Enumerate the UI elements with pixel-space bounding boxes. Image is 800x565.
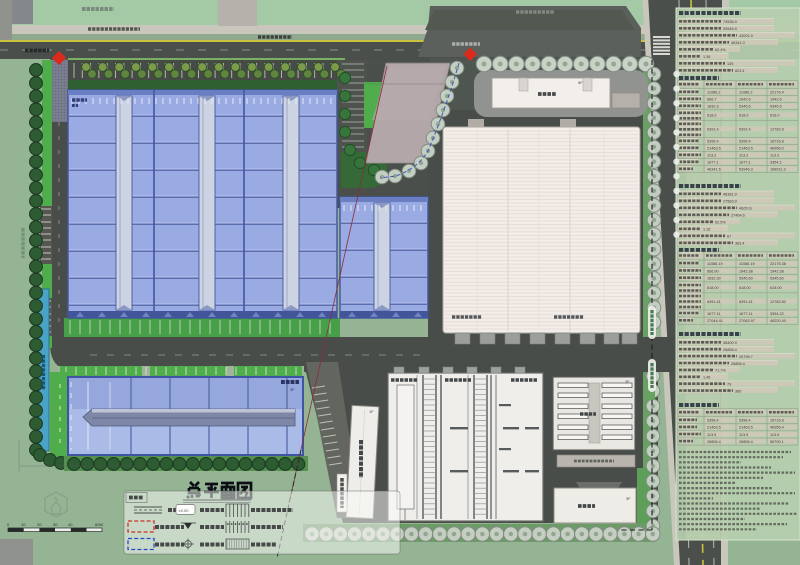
svg-text:46956.4: 46956.4 — [770, 426, 784, 430]
svg-text:618.00: 618.00 — [770, 286, 782, 290]
svg-text:666.90: 666.90 — [707, 269, 719, 273]
svg-text:5345.60: 5345.60 — [739, 277, 753, 281]
svg-text:3354.2: 3354.2 — [770, 161, 782, 165]
svg-text:11086.19: 11086.19 — [707, 262, 723, 266]
svg-text:1677.11: 1677.11 — [739, 312, 752, 316]
svg-text:30: 30 — [53, 522, 58, 527]
svg-text:360: 360 — [735, 389, 741, 393]
svg-text:±0.00: ±0.00 — [179, 508, 190, 513]
svg-text:3F: 3F — [290, 387, 295, 392]
svg-text:363.4: 363.4 — [735, 242, 745, 246]
svg-text:618.0: 618.0 — [707, 114, 717, 118]
svg-text:3F: 3F — [625, 379, 630, 384]
svg-text:3F: 3F — [626, 496, 631, 501]
svg-text:1.46: 1.46 — [703, 376, 710, 380]
svg-text:1F: 1F — [369, 409, 374, 414]
svg-text:22176.4: 22176.4 — [770, 91, 784, 95]
svg-text:113.9: 113.9 — [770, 433, 779, 437]
svg-text:27563.9: 27563.9 — [723, 200, 737, 204]
svg-text:79: 79 — [727, 383, 731, 387]
svg-text:1942.6: 1942.6 — [739, 98, 751, 102]
svg-text:1942.6: 1942.6 — [770, 98, 782, 102]
svg-text:26856.4: 26856.4 — [739, 440, 753, 444]
svg-text:46341.6: 46341.6 — [707, 168, 721, 172]
svg-text:113.2: 113.2 — [770, 154, 779, 158]
svg-text:21463.5: 21463.5 — [739, 147, 753, 151]
svg-text:21463.5: 21463.5 — [707, 147, 721, 151]
svg-text:21463.5: 21463.5 — [707, 426, 721, 430]
svg-text:1677.1: 1677.1 — [707, 161, 719, 165]
svg-text:1677.1: 1677.1 — [739, 161, 751, 165]
svg-text:62.4%: 62.4% — [715, 48, 726, 52]
svg-text:618.00: 618.00 — [739, 286, 751, 290]
svg-text:53946.9: 53946.9 — [723, 27, 737, 31]
svg-text:1942.38: 1942.38 — [770, 269, 784, 273]
svg-text:618.00: 618.00 — [707, 286, 719, 290]
svg-text:56790.1: 56790.1 — [770, 440, 784, 444]
svg-text:60M: 60M — [95, 522, 103, 527]
svg-text:1677.11: 1677.11 — [707, 312, 720, 316]
svg-text:618.0: 618.0 — [739, 114, 749, 118]
svg-text:27062.97: 27062.97 — [739, 319, 755, 323]
svg-text:6391.4: 6391.4 — [707, 128, 719, 132]
svg-text:618.0: 618.0 — [770, 114, 780, 118]
svg-text:67: 67 — [727, 235, 731, 239]
svg-text:5345.6: 5345.6 — [739, 105, 751, 109]
svg-text:46/20.6: 46/20.6 — [739, 207, 752, 211]
svg-text:16716.8: 16716.8 — [770, 140, 784, 144]
svg-text:113.2: 113.2 — [707, 154, 716, 158]
svg-text:168911.3: 168911.3 — [770, 168, 786, 172]
svg-text:36400.9: 36400.9 — [723, 341, 737, 345]
svg-text:22176.38: 22176.38 — [770, 262, 786, 266]
svg-text:5358.4: 5358.4 — [707, 419, 719, 423]
svg-text:823.4: 823.4 — [735, 69, 745, 73]
svg-text:27464.6: 27464.6 — [731, 214, 745, 218]
svg-text:12782.82: 12782.82 — [770, 300, 786, 304]
svg-text:26796.7: 26796.7 — [739, 355, 753, 359]
svg-text:43001.9: 43001.9 — [739, 34, 753, 38]
svg-text:6391.41: 6391.41 — [739, 300, 753, 304]
svg-text:27044.41: 27044.41 — [707, 319, 723, 323]
svg-text:1942.38: 1942.38 — [739, 269, 753, 273]
svg-text:5345.60: 5345.60 — [770, 277, 784, 281]
svg-text:5358.4: 5358.4 — [739, 419, 751, 423]
svg-text:26856.4: 26856.4 — [707, 440, 721, 444]
svg-text:20: 20 — [37, 522, 42, 527]
svg-text:5F: 5F — [578, 80, 583, 85]
svg-text:46381.9: 46381.9 — [723, 193, 737, 197]
svg-text:5395.4: 5395.4 — [707, 140, 719, 144]
svg-text:5395.4: 5395.4 — [739, 140, 751, 144]
svg-text:1832.30: 1832.30 — [707, 277, 721, 281]
svg-text:46956.0: 46956.0 — [770, 147, 784, 151]
svg-text:16716.8: 16716.8 — [770, 419, 784, 423]
svg-text:5345.6: 5345.6 — [770, 105, 782, 109]
svg-text:666.7: 666.7 — [707, 98, 717, 102]
svg-text:53946.3: 53946.3 — [739, 168, 753, 172]
svg-text:46341.0: 46341.0 — [731, 41, 745, 45]
svg-text:113.2: 113.2 — [739, 154, 748, 158]
svg-text:6391.4: 6391.4 — [739, 128, 751, 132]
svg-text:10: 10 — [21, 522, 26, 527]
svg-text:52.5%: 52.5% — [715, 221, 726, 225]
svg-text:3354.22: 3354.22 — [770, 312, 784, 316]
svg-text:26856.4: 26856.4 — [731, 362, 745, 366]
svg-text:6391.41: 6391.41 — [707, 300, 721, 304]
svg-text:11086.19: 11086.19 — [739, 262, 755, 266]
svg-text:71.7%: 71.7% — [715, 369, 726, 373]
svg-text:1.16: 1.16 — [703, 228, 710, 232]
svg-text:113.9: 113.9 — [739, 433, 748, 437]
svg-text:21463.5: 21463.5 — [739, 426, 753, 430]
svg-text:1832.3: 1832.3 — [707, 105, 719, 109]
svg-text:12782.8: 12782.8 — [770, 128, 784, 132]
svg-text:1.36: 1.36 — [703, 55, 710, 59]
svg-text:26856.4: 26856.4 — [723, 348, 737, 352]
svg-text:11086.2: 11086.2 — [739, 91, 752, 95]
svg-text:74536.9: 74536.9 — [723, 20, 737, 24]
svg-text:11086.2: 11086.2 — [707, 91, 720, 95]
svg-text:139: 139 — [727, 62, 733, 66]
svg-text:113.9: 113.9 — [707, 433, 716, 437]
svg-text:40: 40 — [68, 522, 73, 527]
svg-text:46220.40: 46220.40 — [770, 319, 786, 323]
